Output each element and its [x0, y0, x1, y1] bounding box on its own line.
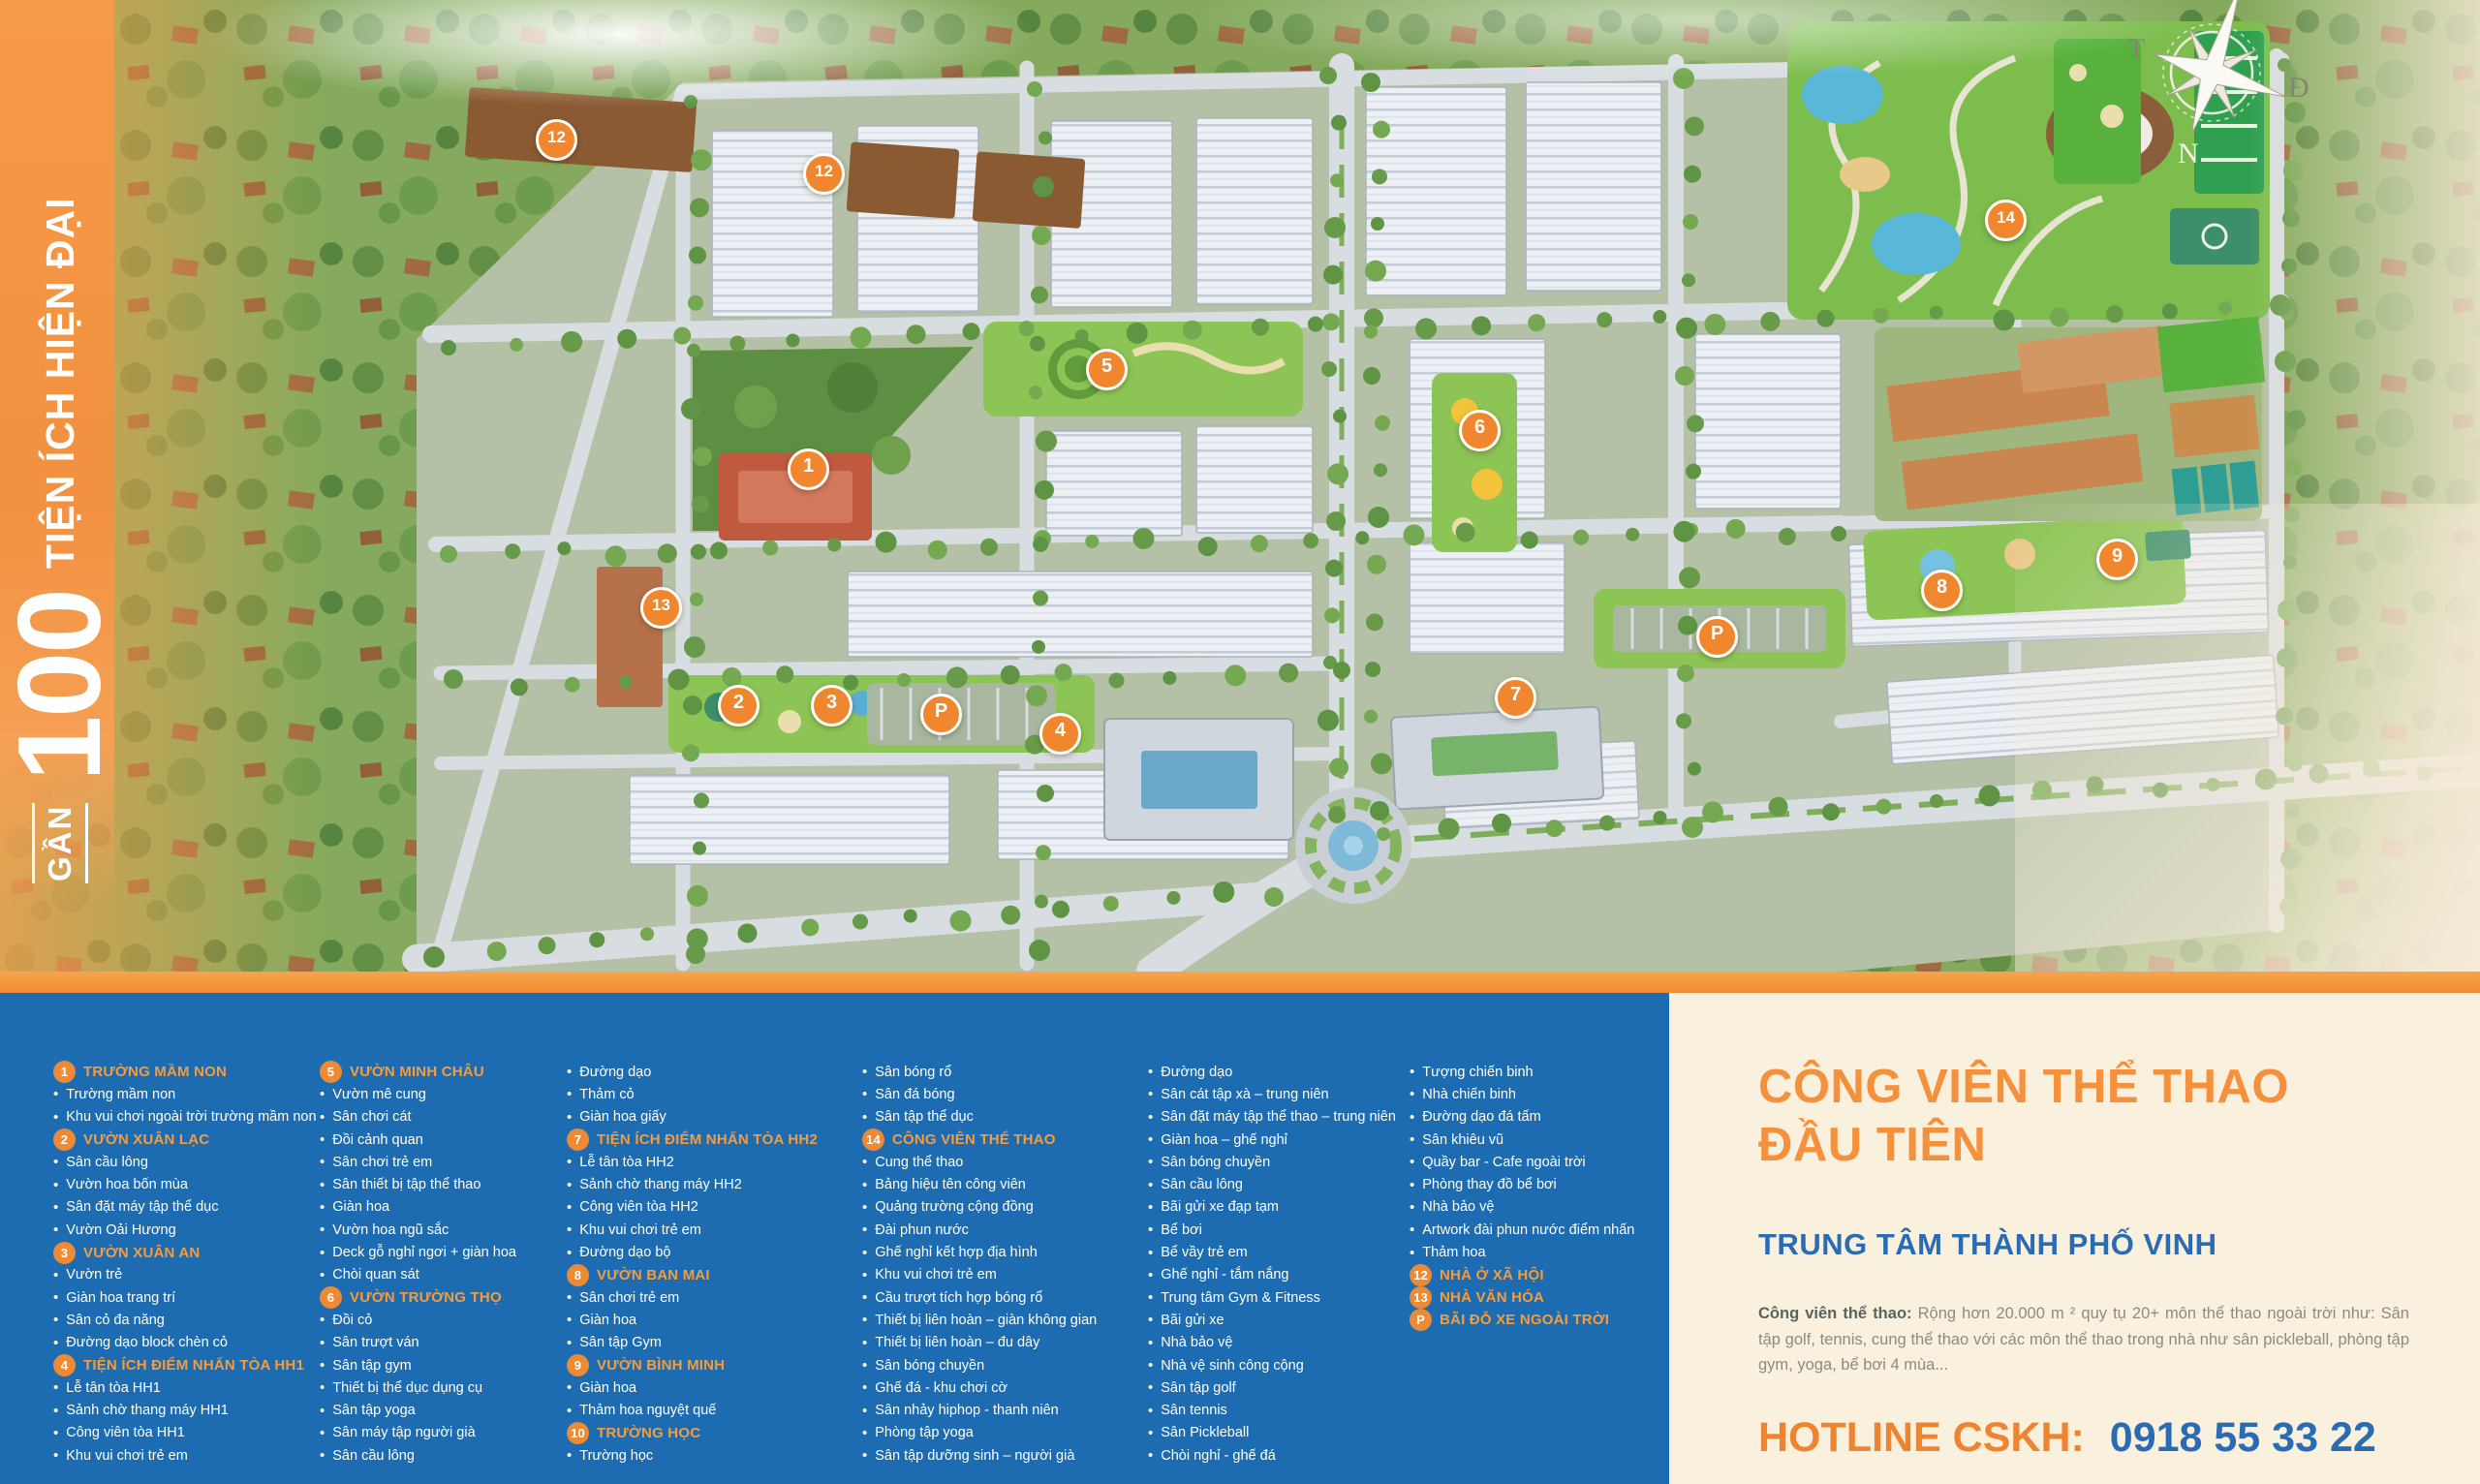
legend-item: •Sân bóng rổ [862, 1061, 1143, 1083]
tree-icon [1769, 797, 1788, 817]
legend-item-label: Khu vui chơi trẻ em [875, 1267, 997, 1283]
legend-item-label: Thiết bị liên hoàn – đu dây [875, 1335, 1039, 1350]
legend-item-label: Sân Pickleball [1161, 1425, 1249, 1440]
tree-icon [950, 911, 972, 932]
tree-icon [1029, 386, 1042, 399]
legend-item-label: Phòng tập yoga [875, 1425, 974, 1440]
legend-item-label: Đường dạo [1161, 1065, 1232, 1080]
tree-icon [589, 932, 604, 947]
legend-item: •Đường dạo [567, 1061, 857, 1083]
tree-icon [1546, 819, 1564, 837]
tree-icon [1019, 321, 1035, 336]
legend-item-label: Ghế nghỉ - tắm nắng [1161, 1267, 1288, 1283]
bullet-icon: • [320, 1425, 325, 1441]
legend-item: •Trường mầm non [53, 1083, 315, 1105]
legend-item: •Thiết bị liên hoàn – đu dây [862, 1332, 1143, 1354]
legend-item: •Quầy bar - Cafe ngoài trời [1410, 1151, 1663, 1173]
legend-section-header: 1TRƯỜNG MẦM NON [53, 1061, 315, 1083]
legend-item: •Nhà chiến binh [1410, 1083, 1663, 1105]
legend-item-label: Lễ tân tòa HH1 [66, 1380, 161, 1396]
legend-item: •Lễ tân tòa HH1 [53, 1376, 315, 1399]
tree-icon [1679, 567, 1700, 588]
legend-column-2: 5VƯỜN MINH CHÂU•Vườn mê cung•Sân chơi cá… [320, 1061, 562, 1467]
map-marker-6: 6 [1459, 410, 1501, 451]
tree-icon [776, 665, 793, 683]
tree-icon [1994, 309, 2015, 330]
legend-item-label: Vườn Oải Hương [66, 1222, 175, 1238]
bullet-icon: • [862, 1312, 867, 1328]
legend-item-label: Sân đặt máy tập thể dục [66, 1199, 218, 1215]
legend-item-label: Vườn hoa ngũ sắc [332, 1222, 449, 1238]
tree-icon [561, 331, 582, 353]
legend-item: •Đường dạo bộ [567, 1241, 857, 1263]
legend-item: •Sân chơi trẻ em [567, 1286, 857, 1309]
tree-icon [1365, 261, 1386, 282]
tree-icon [1027, 81, 1042, 97]
legend-item-label: Sân cầu lông [66, 1155, 148, 1170]
legend-section-header: 14CÔNG VIÊN THỂ THAO [862, 1128, 1143, 1151]
corner-fade [2015, 504, 2480, 972]
tree-icon [692, 495, 709, 512]
bullet-icon: • [862, 1267, 867, 1283]
tree-icon [1687, 415, 1704, 432]
tree-icon [1103, 896, 1119, 912]
tree-icon [1026, 685, 1047, 706]
tree-icon [1324, 607, 1340, 623]
tree-icon [1317, 710, 1339, 731]
legend-item-label: Đài phun nước [875, 1222, 969, 1238]
tree-icon [928, 541, 947, 560]
tree-icon [1001, 906, 1020, 925]
legend-section-title: TIỆN ÍCH ĐIỂM NHẤN TÒA HH2 [597, 1131, 818, 1148]
legend-item-label: Tượng chiến binh [1422, 1065, 1533, 1080]
legend-item: •Cung thể thao [862, 1151, 1143, 1173]
legend-number-badge: 5 [320, 1061, 342, 1083]
legend-item: •Sảnh chờ thang máy HH2 [567, 1173, 857, 1195]
legend-item-label: Bảng hiệu tên công viên [875, 1177, 1026, 1192]
tree-icon [617, 329, 636, 349]
legend-item-label: Sân đặt máy tập thể thao – trung niên [1161, 1109, 1396, 1125]
legend-item-label: Bể bơi [1161, 1222, 1202, 1238]
tree-icon [1685, 116, 1704, 136]
bullet-icon: • [1410, 1131, 1414, 1148]
bullet-icon: • [567, 1177, 572, 1193]
map-marker-2: 2 [718, 685, 759, 727]
legend-item-label: Đường dạo [579, 1065, 651, 1080]
legend-section-header: 3VƯỜN XUÂN AN [53, 1241, 315, 1263]
legend-item: •Phòng tập yoga [862, 1422, 1143, 1444]
tree-icon [1760, 312, 1780, 331]
legend-item-label: Sân tập golf [1161, 1380, 1235, 1396]
legend-item-label: Sân nhảy hiphop - thanh niên [875, 1403, 1058, 1418]
tree-icon [694, 792, 709, 808]
bullet-icon: • [1148, 1335, 1153, 1351]
tree-icon [1333, 410, 1347, 423]
bullet-icon: • [53, 1154, 58, 1170]
bullet-icon: • [567, 1447, 572, 1464]
hotline-label: HOTLINE CSKH: [1758, 1414, 2085, 1461]
bullet-icon: • [320, 1447, 325, 1464]
tree-icon [1052, 901, 1069, 918]
bullet-icon: • [53, 1086, 58, 1102]
tree-icon [690, 198, 709, 217]
legend-item: •Bãi gửi xe đạp tạm [1148, 1196, 1405, 1219]
legend-item: •Vườn Oải Hương [53, 1219, 315, 1241]
tree-icon [557, 541, 571, 555]
tree-icon [1033, 537, 1048, 552]
bullet-icon: • [862, 1425, 867, 1441]
legend-item-label: Artwork đài phun nước điểm nhấn [1422, 1222, 1634, 1238]
legend-item: •Nhà vệ sinh công cộng [1148, 1354, 1405, 1376]
tree-icon [691, 544, 706, 560]
tree-icon [801, 918, 819, 936]
legend-item-label: Cầu trượt tích hợp bóng rổ [875, 1290, 1042, 1306]
tree-icon [1688, 762, 1701, 776]
left-banner: GẦN 100 TIỆN ÍCH HIỆN ĐẠI [0, 0, 114, 906]
tree-icon [1328, 806, 1346, 823]
bullet-icon: • [53, 1177, 58, 1193]
tree-icon [1355, 531, 1369, 544]
bullet-icon: • [567, 1403, 572, 1419]
tree-icon [2050, 307, 2069, 326]
legend-item: •Sân chơi cát [320, 1106, 562, 1128]
tree-icon [1031, 286, 1048, 303]
legend-item: •Lễ tân tòa HH2 [567, 1151, 857, 1173]
legend-item: •Cầu trượt tích hợp bóng rổ [862, 1286, 1143, 1309]
legend-item-label: Trung tâm Gym & Fitness [1161, 1290, 1320, 1306]
legend-section-header: 13NHÀ VĂN HÓA [1410, 1286, 1663, 1309]
legend-item-label: Giàn hoa [579, 1313, 636, 1328]
legend-item: •Đồi cảnh quan [320, 1128, 562, 1151]
tree-icon [1133, 528, 1155, 549]
legend-item: •Sân máy tập người già [320, 1422, 562, 1444]
legend-column-1: 1TRƯỜNG MẦM NON•Trường mầm non•Khu vui c… [53, 1061, 315, 1467]
bullet-icon: • [862, 1289, 867, 1306]
bullet-icon: • [862, 1357, 867, 1374]
legend-column-5: •Đường dạo•Sân cát tập xà – trung niên•S… [1148, 1061, 1405, 1467]
legend-item: •Sân Pickleball [1148, 1422, 1405, 1444]
tree-icon [693, 447, 712, 466]
legend-item-label: Sân cầu lông [332, 1448, 415, 1464]
legend-item: •Công viên tòa HH1 [53, 1422, 315, 1444]
legend-item-label: Bể vầy trẻ em [1161, 1245, 1247, 1260]
legend-item: •Đài phun nước [862, 1219, 1143, 1241]
tree-icon [1029, 940, 1050, 961]
bullet-icon: • [53, 1109, 58, 1126]
tree-icon [1055, 664, 1072, 681]
tree-icon [963, 323, 980, 340]
bullet-icon: • [320, 1086, 325, 1102]
bullet-icon: • [567, 1109, 572, 1126]
tree-icon [1333, 662, 1350, 679]
compass-south-label: N [2178, 138, 2199, 170]
legend-number-badge: 6 [320, 1286, 342, 1309]
bullet-icon: • [567, 1064, 572, 1080]
tree-icon [565, 677, 580, 693]
compass-west-label: T [2127, 33, 2145, 65]
tree-icon [1673, 521, 1694, 542]
master-plan-map: T Đ N 1212145611323P47P89 [0, 0, 2480, 972]
bullet-icon: • [1410, 1064, 1414, 1080]
legend-item-label: Sân tập thể dục [875, 1109, 974, 1125]
bullet-icon: • [1410, 1245, 1414, 1261]
legend-item-label: Sân khiêu vũ [1422, 1132, 1503, 1148]
bullet-icon: • [1148, 1289, 1153, 1306]
tree-icon [1375, 416, 1390, 431]
bullet-icon: • [1148, 1379, 1153, 1396]
legend-item: •Sân chơi trẻ em [320, 1151, 562, 1173]
tree-icon [681, 398, 702, 419]
legend-item: •Sân khiêu vũ [1410, 1128, 1663, 1151]
bullet-icon: • [567, 1289, 572, 1306]
bullet-icon: • [1148, 1447, 1153, 1464]
tree-icon [1303, 533, 1318, 548]
legend-number-badge: 8 [567, 1264, 589, 1286]
legend-item: •Khu vui chơi trẻ em [53, 1444, 315, 1467]
bullet-icon: • [53, 1221, 58, 1238]
bullet-icon: • [320, 1379, 325, 1396]
tree-icon [693, 842, 706, 855]
tree-icon [1726, 519, 1746, 539]
bullet-icon: • [1410, 1109, 1414, 1126]
map-marker-5: 5 [1086, 349, 1128, 390]
tree-icon [946, 666, 968, 688]
tree-icon [1319, 67, 1337, 84]
legend-item: •Tượng chiến binh [1410, 1061, 1663, 1083]
legend-item: •Sân cỏ đa năng [53, 1309, 315, 1331]
legend-item-label: Giàn hoa – ghế nghỉ [1161, 1132, 1287, 1148]
legend-section-title: VƯỜN BAN MAI [597, 1267, 710, 1283]
legend-item-label: Sân cát tập xà – trung niên [1161, 1087, 1328, 1102]
bullet-icon: • [53, 1425, 58, 1441]
legend-item: •Sân đặt máy tập thể thao – trung niên [1148, 1106, 1405, 1128]
legend-number-badge: 7 [567, 1128, 589, 1151]
legend-item: •Khu vui chơi trẻ em [862, 1264, 1143, 1286]
bullet-icon: • [320, 1335, 325, 1351]
legend-item: •Trung tâm Gym & Fitness [1148, 1286, 1405, 1309]
tree-icon [423, 946, 445, 968]
tree-icon [1678, 616, 1697, 635]
tree-icon [687, 928, 708, 949]
bullet-icon: • [567, 1312, 572, 1328]
tree-icon [690, 593, 703, 606]
legend-item-label: Thảm hoa [1422, 1245, 1485, 1260]
legend-item-label: Giàn hoa trang trí [66, 1290, 175, 1306]
tree-icon [1364, 308, 1383, 327]
tree-icon [827, 539, 841, 552]
tree-icon [1331, 115, 1347, 131]
legend-item-label: Phòng thay đồ bể bơi [1422, 1177, 1557, 1192]
tree-icon [1374, 463, 1387, 477]
tree-icon [722, 667, 741, 687]
tree-icon [1371, 753, 1392, 774]
legend-item-label: Giàn hoa [332, 1199, 389, 1215]
tree-icon [1704, 314, 1725, 335]
hotline: HOTLINE CSKH: 0918 55 33 22 [1758, 1414, 2376, 1462]
legend-number-badge: 10 [567, 1422, 589, 1444]
bullet-icon: • [53, 1267, 58, 1283]
tree-icon [1252, 319, 1269, 336]
legend-number-badge: P [1410, 1309, 1432, 1331]
legend-item-label: Khu vui chơi trẻ em [579, 1222, 701, 1238]
legend-section-header: 2VƯỜN XUÂN LẠC [53, 1128, 315, 1151]
legend-item-label: Vườn trẻ [66, 1267, 122, 1283]
tree-icon [1162, 671, 1176, 685]
tree-icon [1183, 321, 1202, 340]
legend-item-label: Giàn hoa [579, 1380, 636, 1396]
legend-item: •Thiết bị thể dục dụng cụ [320, 1376, 562, 1399]
bullet-icon: • [1148, 1199, 1153, 1216]
site-map-illustration: T Đ N [0, 0, 2480, 972]
bullet-icon: • [567, 1245, 572, 1261]
legend-item: •Đường dạo đá tấm [1410, 1106, 1663, 1128]
tree-icon [539, 937, 556, 954]
legend-item-label: Trường mầm non [66, 1087, 175, 1102]
tree-icon [1817, 310, 1835, 327]
legend-item-label: Sân tập Gym [579, 1335, 662, 1350]
tree-icon [852, 914, 868, 930]
tree-icon [1371, 217, 1384, 231]
bullet-icon: • [862, 1109, 867, 1126]
legend-number-badge: 13 [1410, 1286, 1432, 1309]
bullet-icon: • [567, 1154, 572, 1170]
legend-item: •Bãi gửi xe [1148, 1309, 1405, 1331]
tree-icon [1363, 367, 1380, 385]
bullet-icon: • [1410, 1177, 1414, 1193]
legend-item: •Giàn hoa giấy [567, 1106, 857, 1128]
legend-item: •Thiết bị liên hoàn – giàn không gian [862, 1309, 1143, 1331]
legend-item: •Giàn hoa [567, 1309, 857, 1331]
tree-icon [1654, 811, 1667, 824]
map-marker-P: P [920, 694, 962, 735]
divider-stripe [0, 972, 2480, 993]
legend-item: •Khu vui chơi ngoài trời trường mầm non [53, 1106, 315, 1128]
bullet-icon: • [567, 1379, 572, 1396]
tree-icon [1109, 673, 1125, 689]
bullet-icon: • [862, 1447, 867, 1464]
bullet-icon: • [320, 1199, 325, 1216]
bullet-icon: • [320, 1245, 325, 1261]
legend-number-badge: 9 [567, 1354, 589, 1376]
tree-icon [907, 325, 926, 344]
description-lead: Công viên thể thao: [1758, 1305, 1912, 1322]
tree-icon [1779, 528, 1796, 545]
roundabout [1295, 788, 1411, 904]
tree-icon [1528, 314, 1545, 331]
legend-item-label: Deck gỗ nghỉ ngơi + giàn hoa [332, 1245, 516, 1260]
tree-icon [1472, 316, 1491, 335]
legend-item-label: Ghế đá - khu chơi cờ [875, 1380, 1007, 1396]
legend-item: •Vườn hoa bốn mùa [53, 1173, 315, 1195]
legend-item-label: Bãi gửi xe [1161, 1313, 1224, 1328]
legend-section-header: 12NHÀ Ở XÃ HỘI [1410, 1264, 1663, 1286]
bullet-icon: • [1410, 1199, 1414, 1216]
legend-item-label: Sân trượt ván [332, 1335, 418, 1350]
tree-icon [1329, 757, 1348, 777]
tree-icon [1675, 366, 1694, 386]
tree-icon [1308, 317, 1323, 332]
bullet-icon: • [320, 1312, 325, 1328]
page-subtitle: TRUNG TÂM THÀNH PHỐ VINH [1758, 1227, 2217, 1262]
tree-icon [2106, 305, 2123, 323]
tree-icon [1492, 814, 1511, 833]
legend-item-label: Khu vui chơi trẻ em [66, 1448, 188, 1464]
legend-section-title: VƯỜN MINH CHÂU [350, 1064, 484, 1080]
bullet-icon: • [1148, 1312, 1153, 1328]
legend-item: •Artwork đài phun nước điểm nhấn [1410, 1219, 1663, 1241]
tree-icon [687, 344, 700, 357]
bullet-icon: • [1148, 1357, 1153, 1374]
bullet-icon: • [320, 1177, 325, 1193]
tree-icon [1439, 818, 1460, 839]
tree-icon [1075, 329, 1089, 343]
bullet-icon: • [862, 1403, 867, 1419]
legend-item-label: Trường học [579, 1448, 653, 1464]
legend-item-label: Bãi gửi xe đạp tạm [1161, 1199, 1279, 1215]
legend-item: •Sân tennis [1148, 1399, 1405, 1421]
legend-item: •Sân cát tập xà – trung niên [1148, 1083, 1405, 1105]
legend-item: •Ghế nghỉ kết hợp địa hình [862, 1241, 1143, 1263]
map-marker-7: 7 [1495, 677, 1536, 719]
legend-item-label: Thiết bị thể dục dụng cụ [332, 1380, 482, 1396]
tree-icon [1521, 532, 1538, 549]
bullet-icon: • [320, 1109, 325, 1126]
legend-item: •Sân trượt ván [320, 1332, 562, 1354]
tree-icon [1676, 713, 1691, 728]
bullet-icon: • [1148, 1086, 1153, 1102]
tree-icon [510, 338, 523, 352]
tree-icon [688, 295, 703, 311]
bullet-icon: • [1148, 1221, 1153, 1238]
tree-icon [1085, 535, 1099, 548]
tree-icon [1930, 794, 1943, 808]
legend-column-6: •Tượng chiến binh•Nhà chiến binh•Đường d… [1410, 1061, 1663, 1332]
legend-item: •Giàn hoa – ghế nghỉ [1148, 1128, 1405, 1151]
legend-section-header: 5VƯỜN MINH CHÂU [320, 1061, 562, 1083]
legend-item-label: Sân tập dưỡng sinh – người già [875, 1448, 1074, 1464]
bullet-icon: • [320, 1403, 325, 1419]
bullet-icon: • [1148, 1425, 1153, 1441]
legend-item-label: Quầy bar - Cafe ngoài trời [1422, 1155, 1585, 1170]
bullet-icon: • [862, 1177, 867, 1193]
tree-icon [1573, 530, 1589, 545]
legend-section-title: CÔNG VIÊN THỂ THAO [892, 1131, 1056, 1148]
tree-icon [1874, 308, 1889, 324]
legend-item: •Sân bóng chuyền [862, 1354, 1143, 1376]
legend-item: •Vườn trẻ [53, 1264, 315, 1286]
legend-item: •Vườn hoa ngũ sắc [320, 1219, 562, 1241]
legend-item: •Vườn mê cung [320, 1083, 562, 1105]
legend-section-title: VƯỜN XUÂN AN [83, 1245, 200, 1261]
bullet-icon: • [567, 1199, 572, 1216]
tree-icon [1213, 881, 1234, 903]
tree-icon [1979, 785, 2000, 806]
bullet-icon: • [1410, 1221, 1414, 1238]
legend-item: •Sân đá bóng [862, 1083, 1143, 1105]
legend-item: •Sân tập thể dục [862, 1106, 1143, 1128]
tree-icon [1327, 463, 1348, 484]
bullet-icon: • [862, 1221, 867, 1238]
legend-section-title: VƯỜN XUÂN LẠC [83, 1131, 209, 1148]
legend-item-label: Công viên tòa HH2 [579, 1199, 698, 1215]
tree-icon [1677, 665, 1694, 682]
tree-icon [1876, 799, 1892, 815]
legend-item: •Chòi quan sát [320, 1264, 562, 1286]
legend-item-label: Sảnh chờ thang máy HH2 [579, 1177, 742, 1192]
legend-section-header: 7TIỆN ÍCH ĐIỂM NHẤN TÒA HH2 [567, 1128, 857, 1151]
legend-item: •Giàn hoa [320, 1196, 562, 1219]
tree-icon [1364, 710, 1378, 724]
